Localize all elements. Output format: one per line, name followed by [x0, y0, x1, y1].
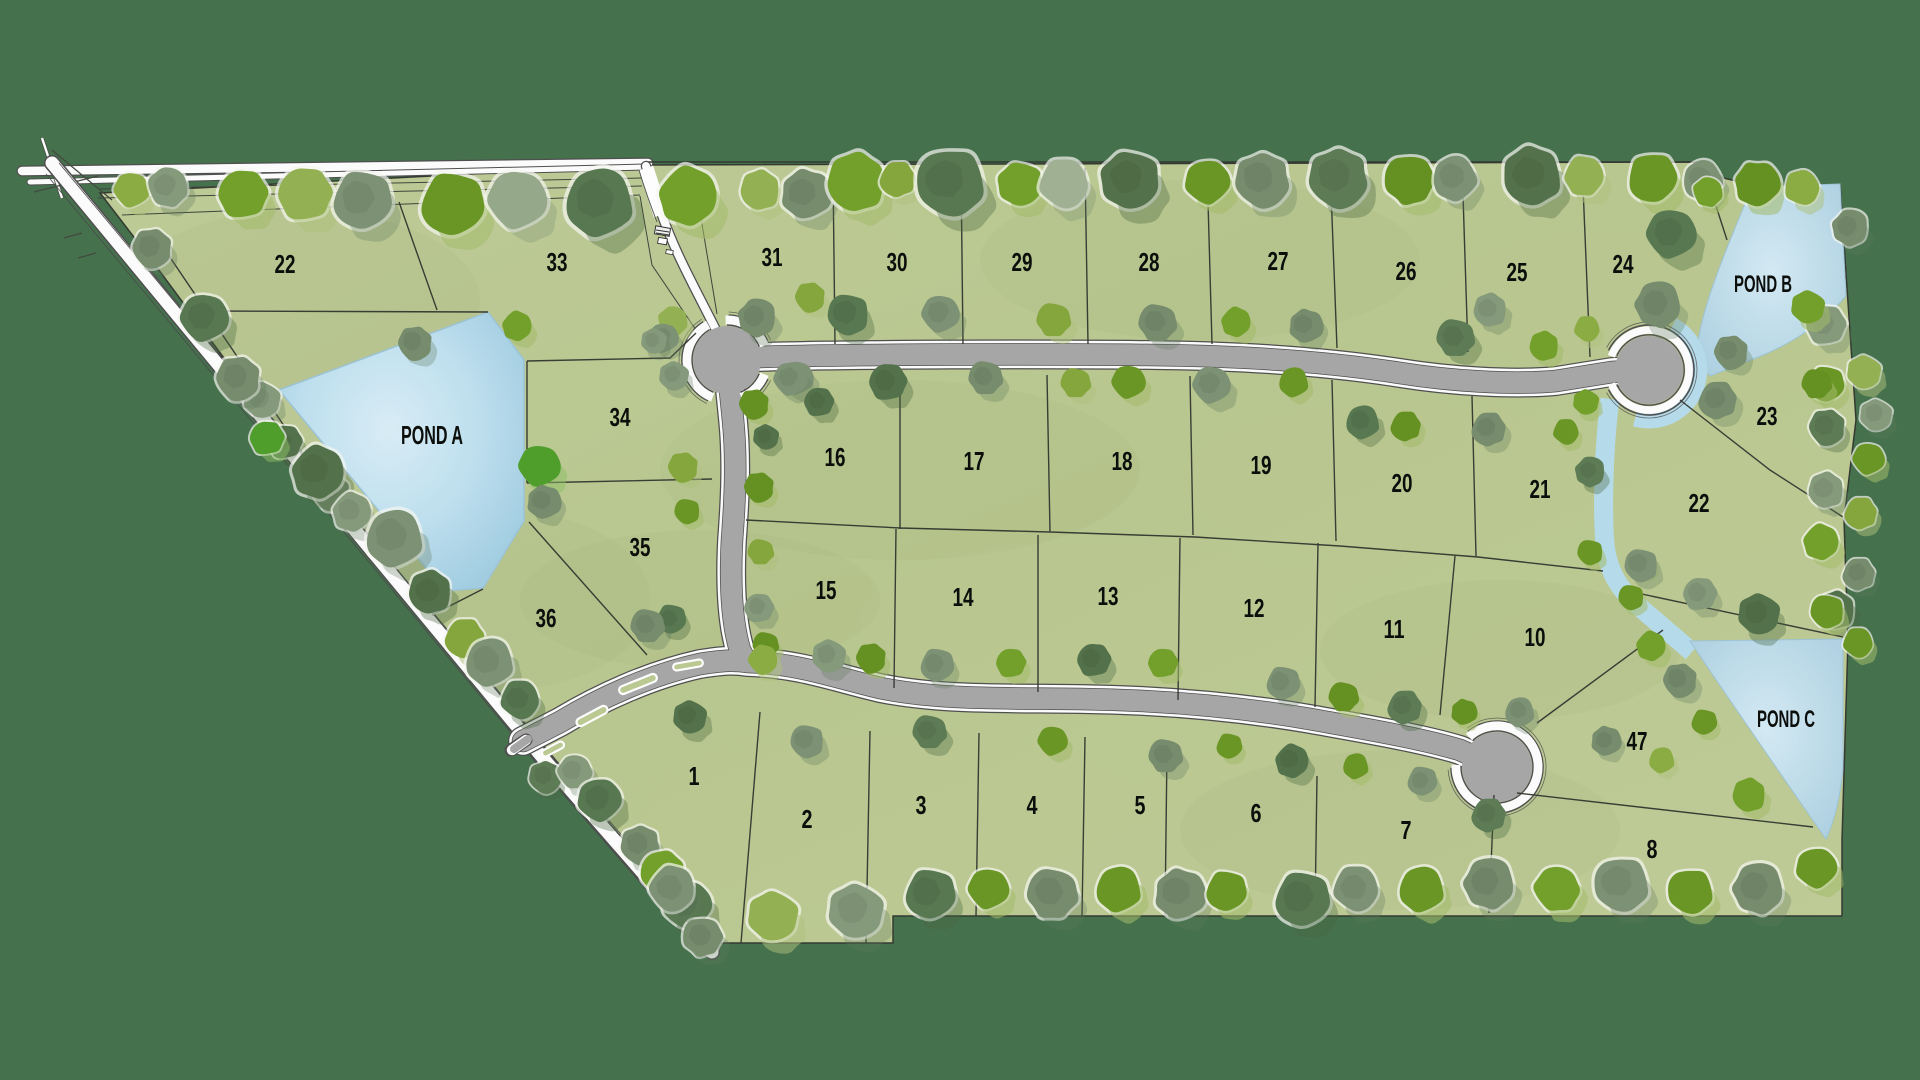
svg-text:POND B: POND B — [1734, 271, 1792, 298]
svg-text:30: 30 — [887, 247, 908, 277]
svg-text:26: 26 — [1396, 256, 1417, 286]
svg-text:17: 17 — [964, 446, 985, 476]
svg-text:14: 14 — [953, 582, 974, 612]
svg-text:POND A: POND A — [401, 420, 463, 450]
svg-text:POND C: POND C — [1757, 706, 1815, 733]
svg-text:1: 1 — [689, 761, 700, 791]
svg-text:22: 22 — [1689, 488, 1710, 518]
svg-text:28: 28 — [1139, 247, 1160, 277]
svg-text:33: 33 — [547, 247, 568, 277]
svg-text:24: 24 — [1613, 249, 1634, 279]
svg-text:3: 3 — [916, 790, 927, 820]
svg-text:21: 21 — [1530, 474, 1551, 504]
svg-text:34: 34 — [610, 402, 631, 432]
svg-text:12: 12 — [1244, 593, 1265, 623]
svg-text:16: 16 — [825, 442, 846, 472]
svg-text:2: 2 — [802, 804, 813, 834]
svg-text:23: 23 — [1757, 401, 1778, 431]
svg-text:31: 31 — [762, 242, 783, 272]
svg-text:7: 7 — [1401, 815, 1412, 845]
svg-text:18: 18 — [1112, 446, 1133, 476]
svg-text:27: 27 — [1268, 246, 1289, 276]
svg-text:35: 35 — [630, 532, 651, 562]
svg-text:10: 10 — [1525, 622, 1546, 652]
svg-text:4: 4 — [1027, 790, 1038, 820]
svg-text:5: 5 — [1135, 790, 1146, 820]
svg-text:15: 15 — [816, 575, 837, 605]
svg-text:25: 25 — [1507, 257, 1528, 287]
svg-text:20: 20 — [1392, 468, 1413, 498]
svg-text:6: 6 — [1251, 798, 1262, 828]
svg-text:19: 19 — [1251, 450, 1272, 480]
svg-text:8: 8 — [1647, 834, 1658, 864]
svg-text:47: 47 — [1627, 726, 1648, 756]
svg-text:13: 13 — [1098, 581, 1119, 611]
svg-text:11: 11 — [1384, 614, 1405, 644]
svg-text:36: 36 — [536, 603, 557, 633]
svg-text:29: 29 — [1012, 247, 1033, 277]
svg-text:22: 22 — [275, 249, 296, 279]
